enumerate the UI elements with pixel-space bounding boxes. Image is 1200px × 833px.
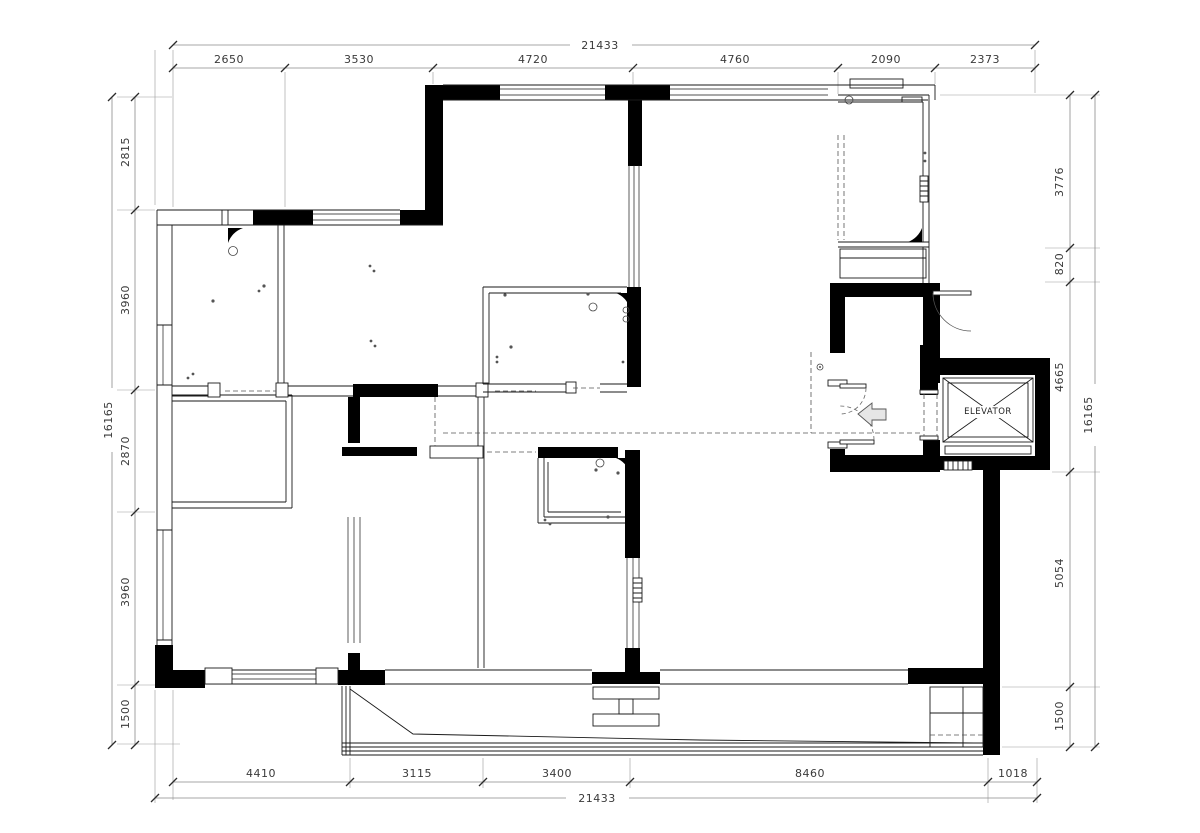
wall-grille-symbols: [633, 176, 928, 602]
dim-top-total: 21433: [581, 39, 619, 52]
dim-right: 3776 820 4665 5054 1500 16165: [1053, 91, 1099, 751]
dim-right-3: 4665: [1053, 362, 1066, 392]
dim-top: 21433 2650 3530 4720 4760 2090 2373: [169, 39, 1039, 72]
floor-plan-svg: 21433 2650 3530 4720 4760 2090 2373 1616…: [0, 0, 1200, 833]
dim-top-5: 2090: [871, 53, 901, 66]
fixture-symbols: [187, 96, 927, 525]
dim-right-total: 16165: [1082, 396, 1095, 434]
balcony: [342, 686, 983, 755]
dim-right-5: 1500: [1053, 701, 1066, 731]
dim-left-5: 1500: [119, 699, 132, 729]
entry-direction-arrow: [858, 403, 886, 426]
floor-plan-canvas: 21433 2650 3530 4720 4760 2090 2373 1616…: [0, 0, 1200, 833]
dim-bottom-total: 21433: [578, 792, 616, 805]
dim-left-2: 3960: [119, 285, 132, 315]
dim-left-1: 2815: [119, 137, 132, 167]
dim-bottom-4: 8460: [795, 767, 825, 780]
structural-walls: [155, 85, 1050, 755]
dim-bottom-5: 1018: [998, 767, 1028, 780]
dim-left: 16165 2815 3960 2870 3960 1500: [102, 93, 139, 749]
corner-markers: [228, 228, 922, 473]
dim-left-total: 16165: [102, 401, 115, 439]
dim-left-4: 3960: [119, 577, 132, 607]
dim-top-2: 3530: [344, 53, 374, 66]
dim-bottom-3: 3400: [542, 767, 572, 780]
dim-bottom-2: 3115: [402, 767, 432, 780]
dim-top-6: 2373: [970, 53, 1000, 66]
dim-top-1: 2650: [214, 53, 244, 66]
dim-bottom: 4410 3115 3400 8460 1018 21433: [151, 767, 1041, 805]
elevator-label: ELEVATOR: [964, 407, 1012, 417]
dim-left-3: 2870: [119, 436, 132, 466]
dim-top-3: 4720: [518, 53, 548, 66]
elevator-call-panel: [944, 461, 972, 470]
dim-right-1: 3776: [1053, 167, 1066, 197]
extension-lines: [117, 50, 1100, 803]
dim-top-4: 4760: [720, 53, 750, 66]
dim-bottom-1: 4410: [246, 767, 276, 780]
dim-right-4: 5054: [1053, 558, 1066, 588]
dim-right-2: 820: [1053, 253, 1066, 276]
